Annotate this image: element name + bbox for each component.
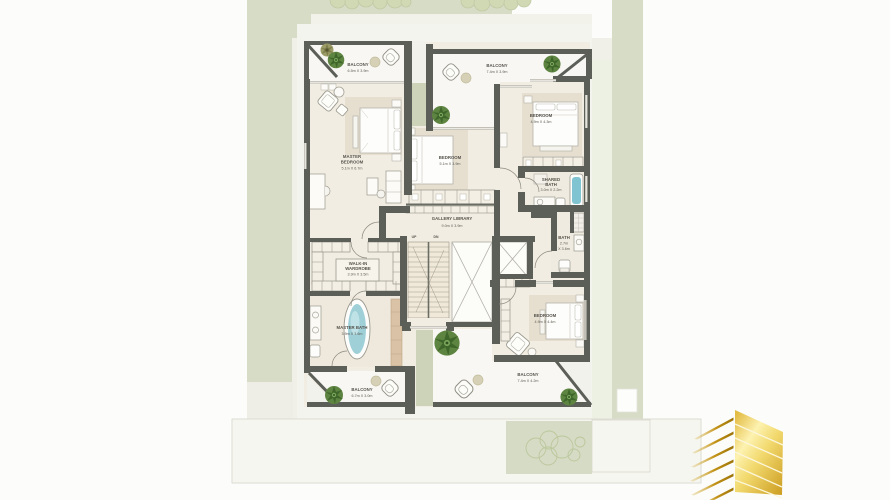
svg-text:UP: UP [412, 235, 417, 239]
svg-text:DN: DN [434, 235, 439, 239]
svg-text:BEDROOM: BEDROOM [530, 113, 553, 118]
svg-text:5.1m X 3.9m: 5.1m X 3.9m [440, 162, 461, 166]
svg-text:7.4m X 4.2m: 7.4m X 4.2m [518, 379, 539, 383]
svg-text:MASTER BATH: MASTER BATH [337, 325, 368, 330]
svg-text:GALLERY LIBRARY: GALLERY LIBRARY [432, 216, 473, 221]
svg-text:3.9m X 3.6m: 3.9m X 3.6m [342, 332, 363, 336]
svg-text:7.4m X 3.9m: 7.4m X 3.9m [487, 70, 508, 74]
svg-text:WARDROBE: WARDROBE [345, 266, 371, 271]
svg-text:3.9m X 3.5m: 3.9m X 3.5m [348, 273, 369, 277]
svg-text:2.7m: 2.7m [560, 242, 568, 246]
svg-text:BALCONY: BALCONY [486, 63, 507, 68]
svg-text:BATH: BATH [558, 235, 570, 240]
svg-text:5.1m X 6.7m: 5.1m X 6.7m [342, 167, 363, 171]
svg-text:3.0m X 2.2m: 3.0m X 2.2m [541, 188, 562, 192]
svg-text:BALCONY: BALCONY [351, 387, 372, 392]
svg-text:4.9m X 4.3m: 4.9m X 4.3m [531, 120, 552, 124]
svg-text:MASTER: MASTER [343, 154, 362, 159]
svg-text:BEDROOM: BEDROOM [534, 313, 557, 318]
svg-text:BALCONY: BALCONY [517, 372, 538, 377]
svg-text:9.0m X 3.9m: 9.0m X 3.9m [442, 224, 463, 228]
svg-text:BEDROOM: BEDROOM [341, 160, 364, 165]
svg-text:BATH: BATH [545, 182, 557, 187]
svg-text:X 3.6m: X 3.6m [558, 247, 570, 251]
svg-text:BALCONY: BALCONY [347, 62, 368, 67]
svg-text:BEDROOM: BEDROOM [439, 155, 462, 160]
svg-text:6.5m X 3.9m: 6.5m X 3.9m [348, 69, 369, 73]
svg-text:6.7m X 3.0m: 6.7m X 3.0m [352, 394, 373, 398]
svg-text:4.9m X 4.4m: 4.9m X 4.4m [535, 320, 556, 324]
